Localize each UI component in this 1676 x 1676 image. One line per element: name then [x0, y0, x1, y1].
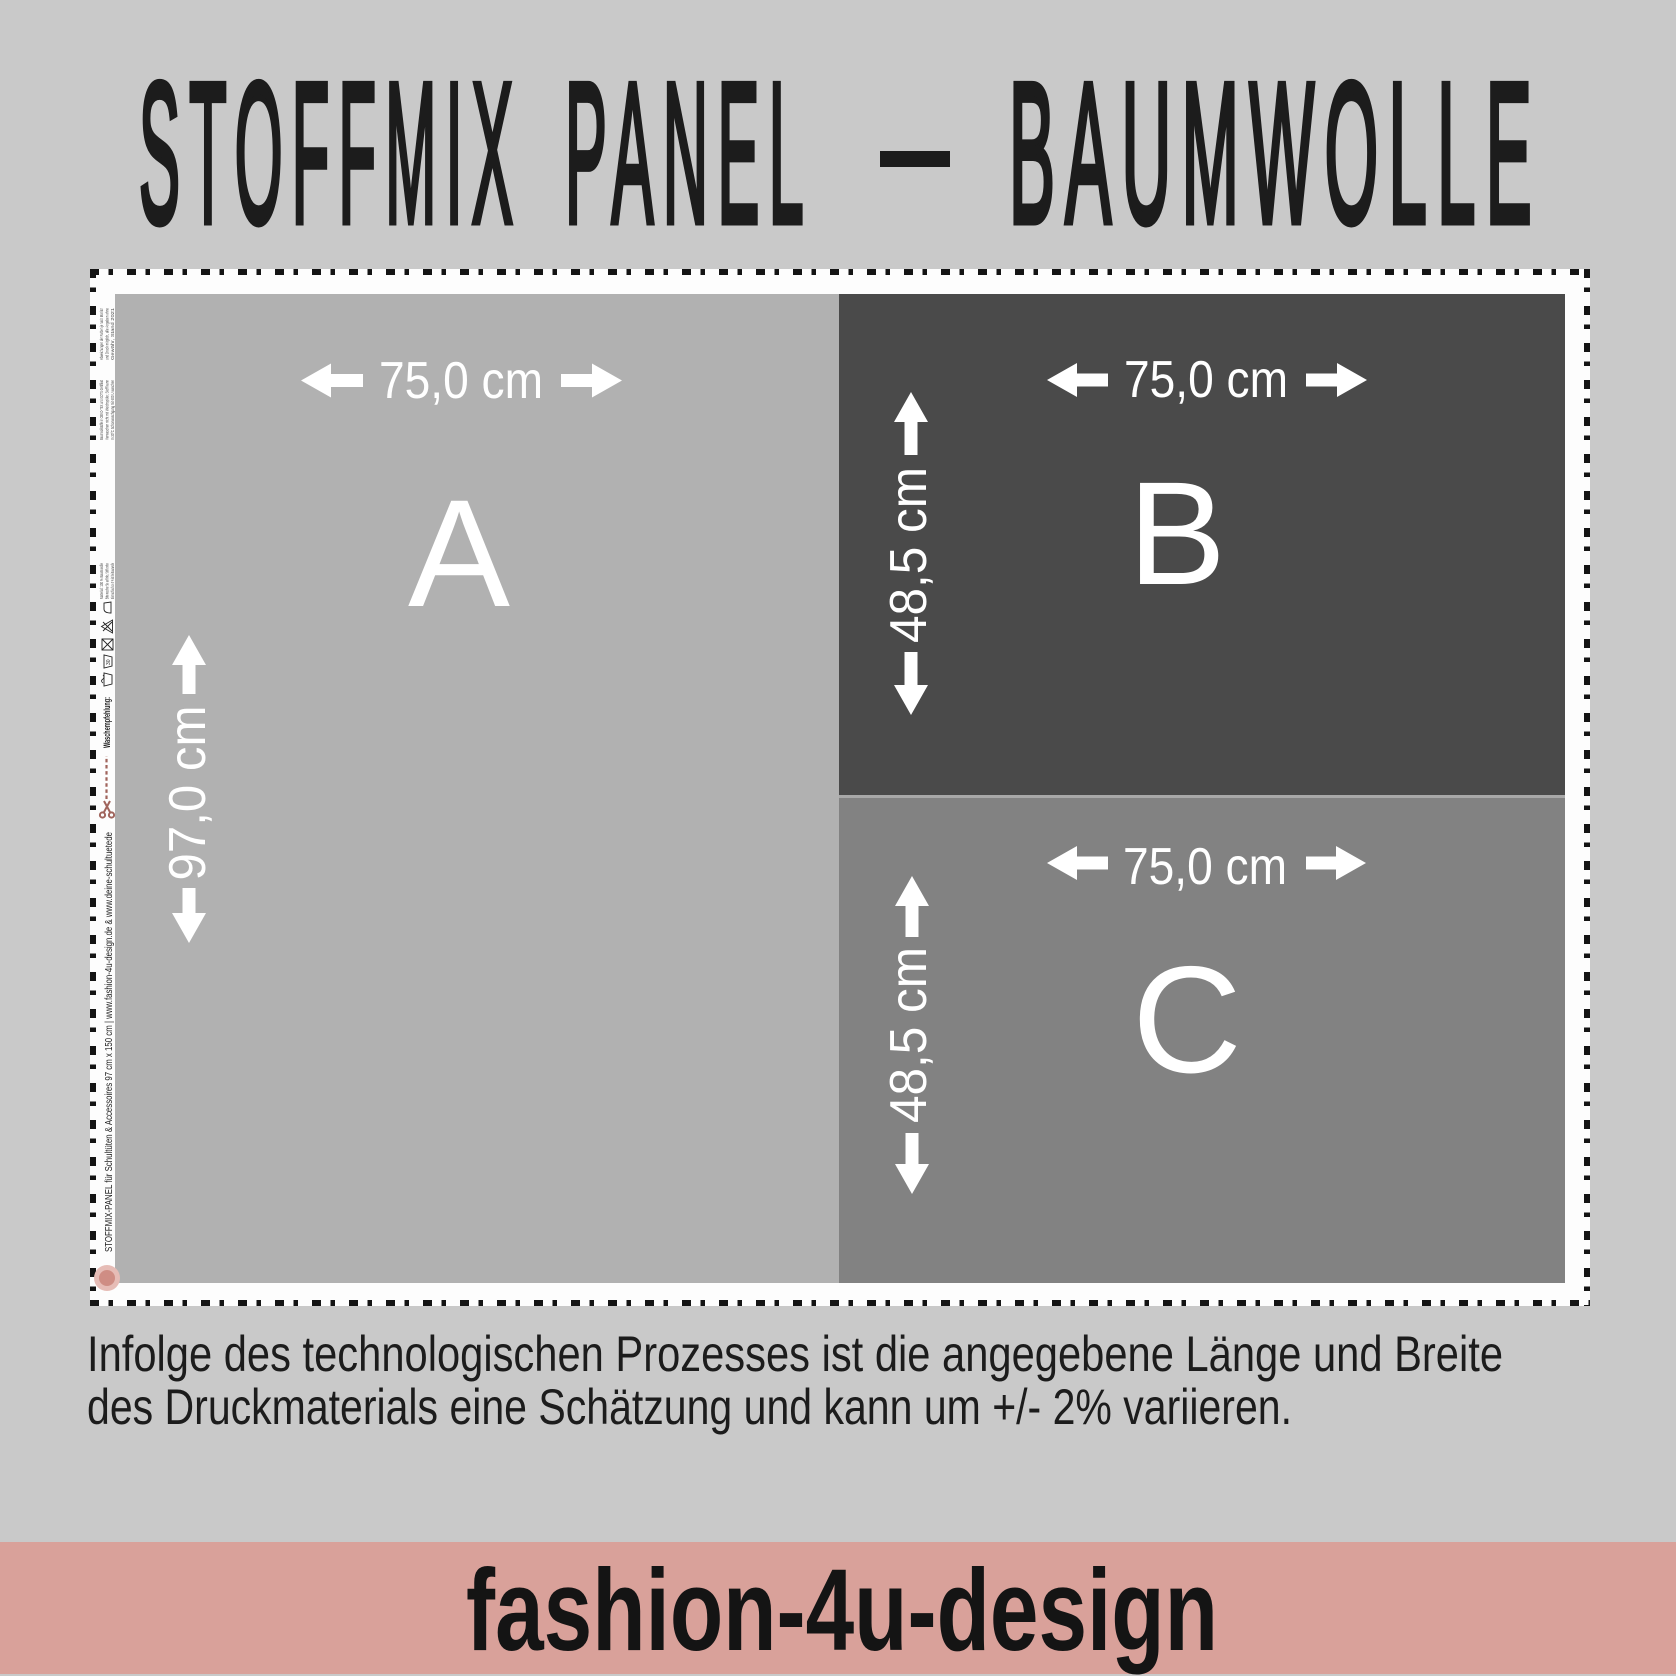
- svg-text:75,0 cm: 75,0 cm: [379, 352, 543, 410]
- svg-text:Verwaschen nicht mit Weichspül: Verwaschen nicht mit Weichspüler, Stoff …: [105, 380, 110, 440]
- svg-text:48,5 cm: 48,5 cm: [880, 947, 938, 1123]
- svg-text:und Druck möglich, alle Angabe: und Druck möglich, alle Angaben ohne: [105, 308, 110, 360]
- svg-text:97,0 cm: 97,0 cm: [159, 706, 217, 881]
- svg-text:Infolge des technologischen Pr: Infolge des technologischen Prozesses is…: [87, 1326, 1503, 1382]
- svg-text:STOFFMIX-PANEL für Schultüten: STOFFMIX-PANEL für Schultüten & Accessoi…: [104, 832, 115, 1252]
- svg-text:Bitte waschen Sie auf links, S: Bitte waschen Sie auf links, Stoff vorhe…: [105, 563, 110, 599]
- svg-text:30: 30: [106, 659, 112, 665]
- svg-text:Waschempfehlung:: Waschempfehlung:: [102, 697, 113, 748]
- svg-text:Baumwollstoffe in OEKO-TEX und: Baumwollstoffe in OEKO-TEX und GOTS-Zert…: [99, 379, 104, 440]
- svg-text:C: C: [1132, 935, 1242, 1105]
- svg-text:Gewähr, Stand 2021: Gewähr, Stand 2021: [110, 307, 115, 360]
- svg-text:STOFFMIX: STOFFMIX: [139, 42, 522, 265]
- svg-text:In 30°C Schonwaschgang mit 600: In 30°C Schonwaschgang mit 600 U waschen: [110, 380, 115, 440]
- svg-text:fashion-4u-design: fashion-4u-design: [466, 1545, 1218, 1675]
- svg-text:PANEL: PANEL: [565, 42, 813, 265]
- svg-text:Ein Nachlauf von 5 % ist bei B: Ein Nachlauf von 5 % ist bei Baumwolle: [110, 563, 115, 599]
- svg-text:BAUMWOLLE: BAUMWOLLE: [1009, 42, 1542, 265]
- svg-text:75,0 cm: 75,0 cm: [1124, 351, 1288, 409]
- svg-text:Material: 100 % Baumwolle: Material: 100 % Baumwolle: [99, 563, 104, 599]
- svg-text:A: A: [408, 468, 510, 639]
- svg-text:des Druckmaterials eine Schätz: des Druckmaterials eine Schätzung und ka…: [87, 1379, 1292, 1435]
- svg-text:Abweichungen der Farben je nac: Abweichungen der Farben je nach Monitor: [99, 308, 104, 360]
- svg-text:B: B: [1128, 452, 1226, 616]
- svg-text:75,0 cm: 75,0 cm: [1123, 838, 1287, 896]
- svg-text:48,5 cm: 48,5 cm: [880, 467, 938, 643]
